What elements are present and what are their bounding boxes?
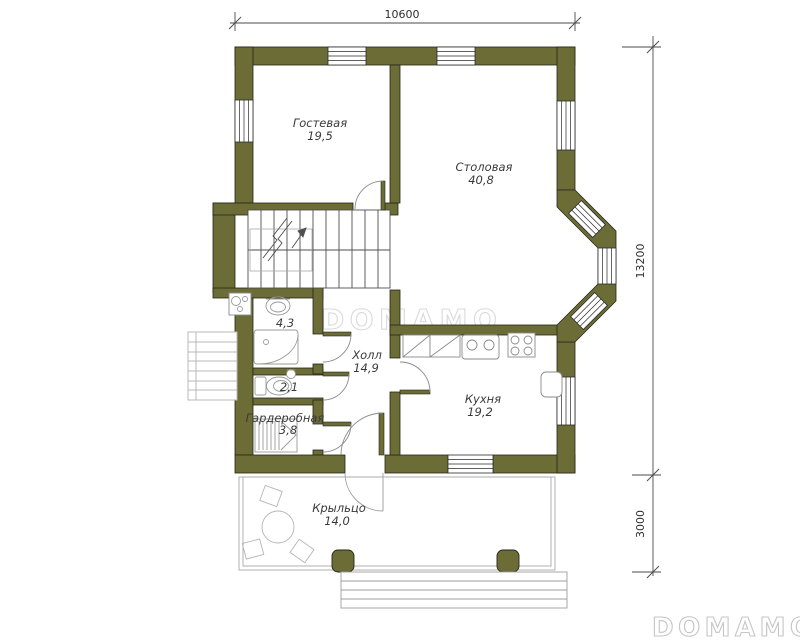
porch-columns bbox=[332, 550, 519, 572]
floor-plan-page: DOMAMO bbox=[0, 0, 800, 640]
label-hall-area: 14,9 bbox=[353, 361, 379, 375]
wall-wc-wardrobe bbox=[253, 398, 323, 405]
door-guest bbox=[355, 181, 385, 210]
porch bbox=[239, 477, 567, 608]
wall-left-stair-bump bbox=[213, 203, 235, 293]
partition-dining-kitchen bbox=[390, 325, 575, 335]
partition-guest-dining bbox=[390, 65, 400, 203]
window-right-upper bbox=[557, 101, 575, 150]
watermark-corner: DOMAMO bbox=[652, 613, 800, 640]
shower bbox=[254, 330, 298, 364]
label-wardrobe-area: 3,8 bbox=[279, 423, 297, 437]
kitchen-counter bbox=[403, 335, 460, 357]
label-hall-name: Холл bbox=[351, 348, 382, 362]
fridge bbox=[541, 372, 562, 397]
window-left bbox=[235, 100, 253, 142]
label-kitchen-area: 19,2 bbox=[467, 405, 493, 419]
partition-hall-left-4 bbox=[313, 450, 323, 455]
door-entrance bbox=[341, 413, 384, 511]
door-kitchen bbox=[400, 362, 430, 394]
label-wc-area: 2,1 bbox=[280, 380, 298, 394]
wall-left-lower bbox=[235, 298, 253, 455]
label-porch-name: Крыльцо bbox=[312, 501, 366, 515]
door-wardrobe bbox=[323, 422, 351, 452]
porch-steps bbox=[341, 572, 567, 608]
wall-bottom-mid bbox=[385, 455, 448, 473]
window-top-left bbox=[328, 47, 366, 65]
side-steps bbox=[188, 332, 237, 400]
staircase bbox=[248, 210, 390, 288]
window-bay-center bbox=[598, 248, 616, 284]
door-wc bbox=[323, 372, 349, 400]
bathroom-sink bbox=[266, 297, 290, 315]
partition-hall-left-1 bbox=[313, 288, 323, 334]
stove bbox=[508, 333, 535, 357]
dimension-porch-label: 3000 bbox=[634, 510, 647, 538]
wc-sink bbox=[287, 370, 296, 379]
label-porch-area: 14,0 bbox=[324, 514, 350, 528]
label-dining-area: 40,8 bbox=[468, 173, 494, 187]
dimension-right bbox=[622, 36, 661, 578]
floor-plan-drawing: DOMAMO bbox=[0, 0, 800, 640]
window-top-right bbox=[437, 47, 475, 65]
boiler-unit bbox=[229, 293, 251, 315]
label-bathroom-area: 4,3 bbox=[276, 316, 294, 330]
label-guest-name: Гостевая bbox=[293, 116, 347, 130]
dimension-top-label: 10600 bbox=[385, 8, 420, 21]
wall-top bbox=[235, 47, 575, 65]
wall-bottom-left bbox=[235, 455, 345, 473]
porch-table-and-chairs bbox=[242, 485, 314, 562]
dimension-right-label: 13200 bbox=[634, 244, 647, 279]
label-dining-name: Столовая bbox=[456, 160, 513, 174]
label-kitchen-name: Кухня bbox=[465, 392, 501, 406]
kitchen-sink bbox=[462, 335, 499, 359]
partition-hall-left-2 bbox=[313, 364, 323, 374]
door-bathroom bbox=[323, 332, 351, 362]
partition-hall-kitchen-1 bbox=[390, 290, 400, 358]
partition-hall-kitchen-2 bbox=[390, 392, 400, 455]
label-guest-area: 19,5 bbox=[307, 129, 333, 143]
window-bottom-kitchen bbox=[448, 455, 493, 473]
